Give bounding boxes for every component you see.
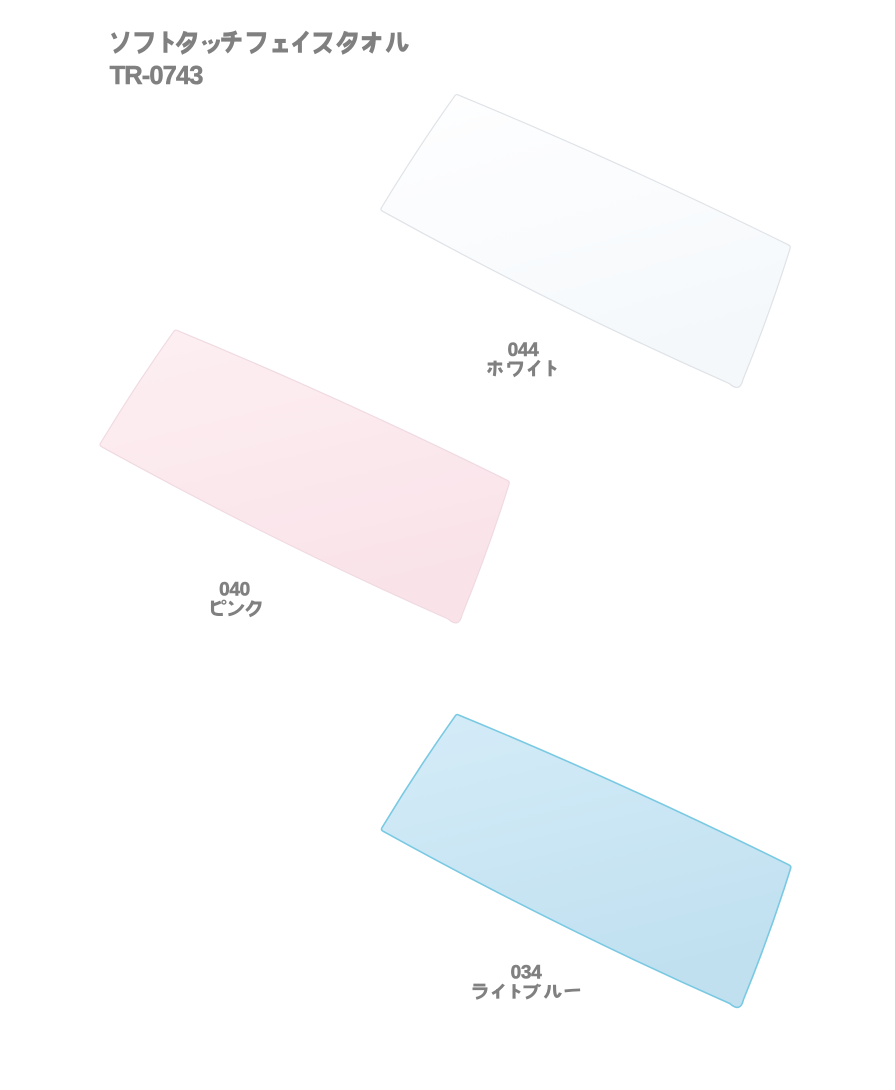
svg-text:TR-0743: TR-0743 bbox=[110, 62, 204, 90]
svg-text:044: 044 bbox=[508, 340, 540, 361]
svg-text:034: 034 bbox=[511, 963, 543, 984]
svg-text:040: 040 bbox=[219, 579, 250, 600]
